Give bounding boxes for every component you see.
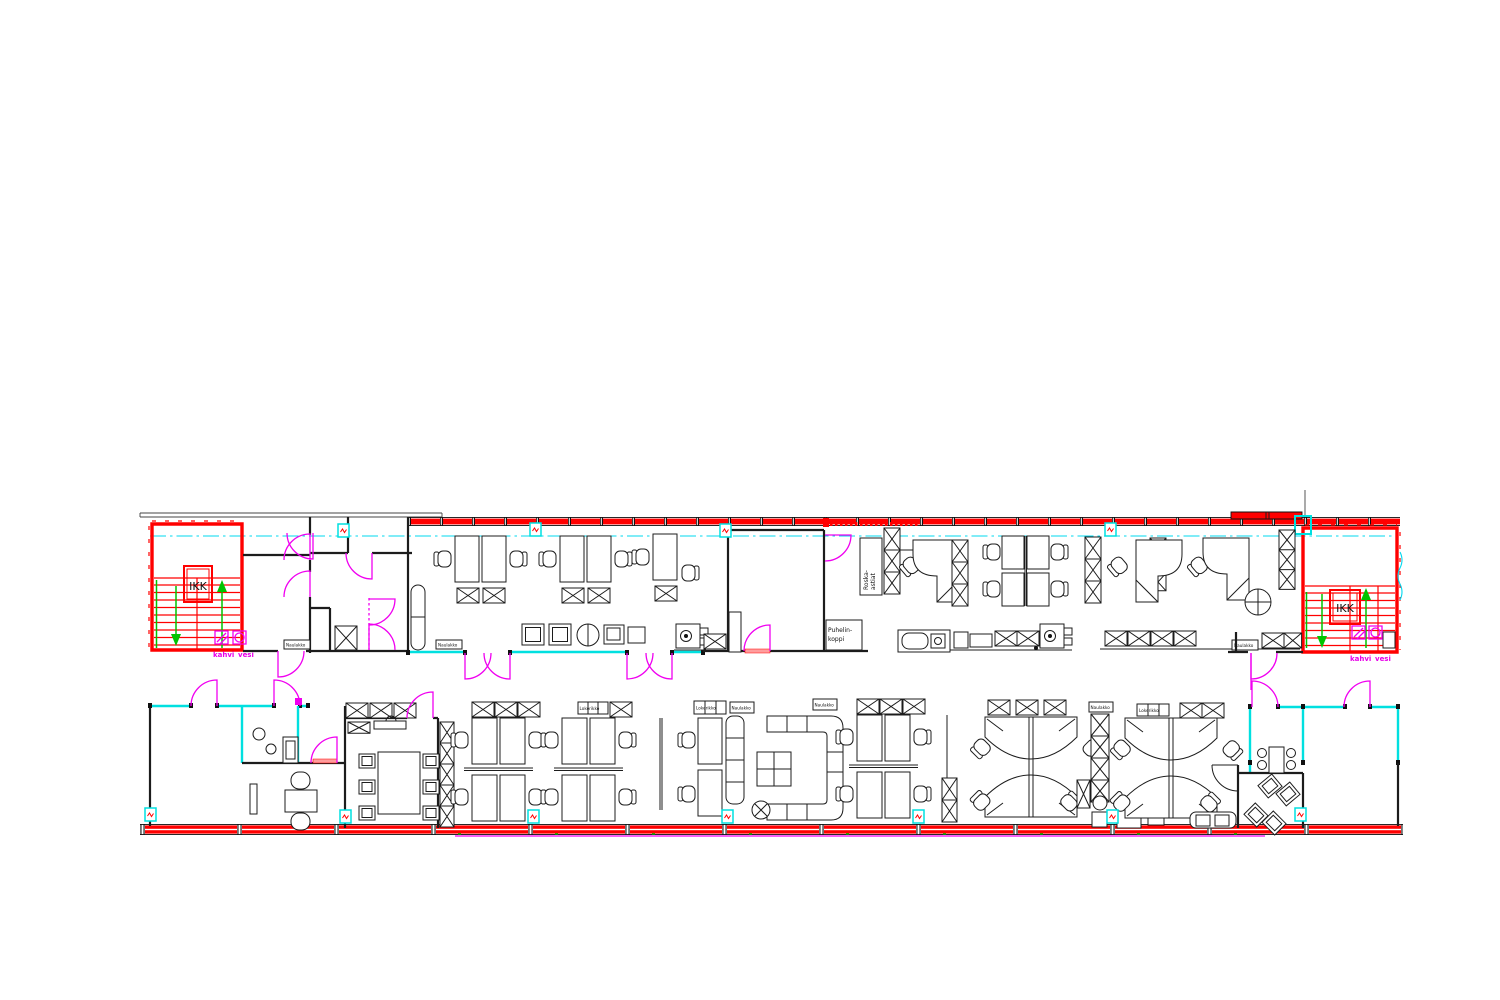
desk-pair bbox=[434, 536, 527, 603]
sensor-box-icon bbox=[913, 810, 924, 823]
x-cabinet-icon bbox=[1279, 530, 1295, 589]
open-office-right: Naulakko bbox=[898, 530, 1303, 690]
printer bbox=[674, 624, 708, 650]
lounge-chairs-row bbox=[522, 624, 645, 646]
locker-label: Lokerikko bbox=[580, 706, 600, 711]
door-arc-icon bbox=[1252, 681, 1278, 707]
coatrack-label: Naulakko bbox=[286, 643, 306, 648]
coatrack-label: Naulakko bbox=[732, 706, 752, 711]
stairwell-right: IKK kahvi vesi bbox=[1295, 516, 1402, 663]
door-sill bbox=[745, 649, 770, 653]
sensor-box-icon bbox=[145, 808, 156, 821]
x-cabinet-icon bbox=[884, 528, 900, 594]
door-arc-icon bbox=[825, 535, 851, 561]
door-arc-icon bbox=[744, 625, 770, 651]
door-arc-icon bbox=[369, 624, 395, 650]
coatrack-label-box: Naulakko bbox=[284, 640, 310, 649]
workstation-l2 bbox=[1106, 538, 1182, 602]
phone-booth-label-2: koppi bbox=[828, 636, 845, 643]
coatrack-label-box: Naulakko bbox=[730, 702, 754, 713]
sensor-box-icon bbox=[528, 810, 539, 823]
stair-arrow-down bbox=[1317, 594, 1327, 648]
bottom-band: Lokerikko Lokerikko Naulakko Naulakko bbox=[145, 680, 1400, 835]
sensor-box-icon bbox=[338, 524, 349, 537]
x-cabinet-icon bbox=[1085, 537, 1101, 603]
water-label-left: vesi bbox=[238, 651, 254, 659]
coatrack-label: Naulakko bbox=[815, 703, 835, 708]
coatrack-label-box: Naulakko bbox=[813, 699, 837, 710]
coatrack-label-box: Naulakko bbox=[1089, 702, 1113, 712]
single-desk bbox=[632, 534, 699, 601]
small-box bbox=[1383, 632, 1395, 648]
door-arc-icon bbox=[191, 680, 217, 706]
door-arc-icon bbox=[369, 599, 395, 625]
small-office bbox=[250, 772, 317, 830]
stairwell-left-label: IKK bbox=[189, 580, 207, 593]
waste-label-2: astiat bbox=[870, 573, 877, 590]
bench-two-seat bbox=[1190, 812, 1236, 828]
small-meeting-table bbox=[1258, 747, 1296, 773]
sensor-box-icon bbox=[1107, 810, 1118, 823]
sensor-box-icon bbox=[340, 810, 351, 823]
door-arc-icon bbox=[1251, 653, 1277, 679]
water-label-right: vesi bbox=[1375, 655, 1391, 663]
door-sill bbox=[313, 759, 337, 763]
door-arc-icon bbox=[284, 571, 310, 597]
door-arc-icon bbox=[484, 653, 510, 679]
door-arc-icon bbox=[346, 553, 372, 579]
meeting-table bbox=[378, 752, 420, 814]
waste-label-1: Roska- bbox=[863, 570, 870, 590]
door-arc-icon bbox=[646, 653, 672, 679]
x-cabinet-icon bbox=[1017, 631, 1039, 646]
coffee-label-left: kahvi bbox=[213, 651, 234, 659]
locker-label: Lokerikko bbox=[696, 706, 716, 711]
coatrack-label: Naulakko bbox=[1091, 705, 1111, 710]
lounge-area: Naulakko bbox=[752, 699, 843, 820]
x-cabinet-icon bbox=[995, 631, 1017, 646]
wc-room bbox=[253, 728, 298, 763]
top-left-rooms: Naulakko bbox=[243, 517, 425, 677]
sensor-box-icon bbox=[720, 524, 731, 537]
locker-label-box: Lokerikko bbox=[694, 701, 726, 714]
door-marker bbox=[295, 698, 302, 705]
locker-label-box: Lokerikko bbox=[1137, 704, 1169, 716]
locker-label: Lokerikko bbox=[1139, 708, 1159, 713]
locker-label-box: Lokerikko bbox=[578, 702, 608, 714]
printer bbox=[1040, 624, 1072, 648]
x-cabinet-icon bbox=[942, 778, 957, 822]
coatrack-label-box: Naulakko bbox=[436, 640, 462, 649]
kitchen-counter bbox=[898, 630, 950, 652]
floor-plan-canvas: IKK kahvi vesi IKK kahvi vesi bbox=[0, 0, 1500, 1000]
desk-pair bbox=[539, 536, 632, 603]
door-arc-icon bbox=[1212, 765, 1238, 791]
coatrack-label: Naulakko bbox=[438, 643, 458, 648]
x-cabinet-icon bbox=[704, 634, 726, 649]
sensor-box-icon bbox=[722, 810, 733, 823]
right-rooms bbox=[1238, 681, 1400, 835]
desk-pod-curved bbox=[1109, 718, 1245, 818]
desk-cluster-4 bbox=[983, 536, 1068, 606]
desk-pod bbox=[451, 718, 546, 821]
meeting-room-bottom bbox=[346, 692, 439, 820]
desk-pod bbox=[836, 715, 931, 818]
door-arc-icon bbox=[278, 651, 304, 677]
closet-wall bbox=[310, 608, 330, 652]
sensor-box-icon bbox=[530, 523, 541, 536]
x-cabinet-icon bbox=[335, 626, 357, 650]
top-thin-wall bbox=[140, 513, 442, 517]
stair-arrow-down bbox=[171, 586, 181, 646]
phone-booth: Puhelin- koppi bbox=[826, 620, 862, 650]
sensor-box-icon bbox=[1295, 808, 1306, 821]
floor-plan-drawing: IKK kahvi vesi IKK kahvi vesi bbox=[0, 0, 1500, 1000]
screen-divider bbox=[660, 718, 662, 810]
stairwell-right-label: IKK bbox=[1336, 602, 1354, 615]
coffee-label-right: kahvi bbox=[1350, 655, 1371, 663]
desk-pod bbox=[541, 718, 636, 821]
phone-booth-label-1: Puhelin- bbox=[828, 627, 852, 634]
wall-marker bbox=[823, 518, 829, 527]
sensor-box-icon bbox=[1105, 523, 1116, 536]
stairwell-left: IKK kahvi vesi bbox=[149, 521, 254, 659]
door-arc-icon bbox=[1344, 681, 1370, 707]
workstation-l3 bbox=[1186, 538, 1271, 615]
open-office-left: Naulakko bbox=[406, 534, 726, 679]
desk-pod-small: Lokerikko Naulakko bbox=[678, 701, 754, 816]
wall-stub bbox=[729, 612, 741, 652]
